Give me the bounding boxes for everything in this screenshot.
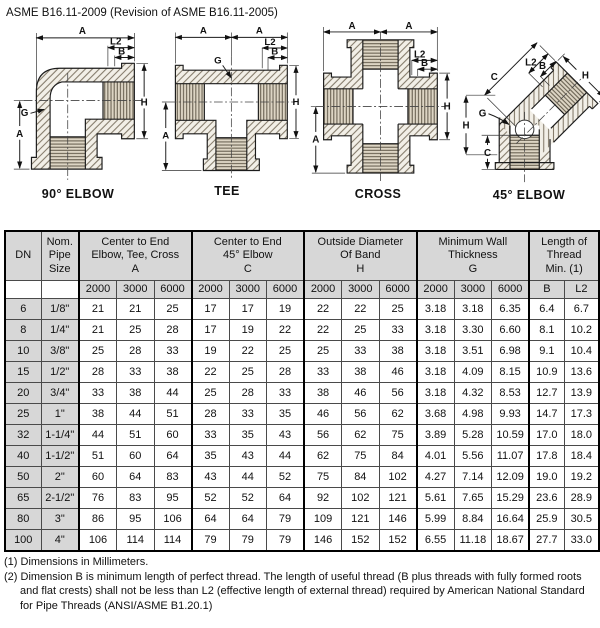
footnotes: (1) Dimensions in Millimeters. (2) Dimen… [4, 555, 596, 613]
value-cell: 46 [342, 383, 380, 404]
value-cell: 19 [229, 320, 267, 341]
value-cell: 28 [229, 383, 267, 404]
value-cell: 38 [79, 404, 117, 425]
value-cell: 23.6 [529, 488, 564, 509]
value-cell: 62 [342, 425, 380, 446]
pipe-size-cell: 2-1/2" [41, 488, 79, 509]
header-line: Elbow, Tee, Cross [91, 249, 179, 261]
value-cell: 13.9 [564, 383, 599, 404]
value-cell: 19 [267, 299, 305, 320]
empty-header-cell [5, 281, 41, 299]
value-cell: 10.2 [564, 320, 599, 341]
footnote-2: (2) Dimension B is minimum length of per… [4, 570, 596, 614]
value-cell: 8.15 [492, 362, 530, 383]
value-cell: 44 [229, 467, 267, 488]
value-cell: 60 [117, 446, 155, 467]
value-cell: 19 [192, 341, 230, 362]
value-cell: 56 [342, 404, 380, 425]
value-cell: 114 [154, 530, 192, 552]
subcol-header: L2 [564, 281, 599, 299]
figure-tee: A A L2 B G H A TEE [152, 20, 302, 224]
subcol-header: 6000 [492, 281, 530, 299]
cross-drawing: A A L2 B H A [304, 20, 453, 187]
value-cell: 43 [229, 446, 267, 467]
value-cell: 33 [117, 362, 155, 383]
value-cell: 52 [267, 467, 305, 488]
value-cell: 4.98 [454, 404, 492, 425]
value-cell: 56 [379, 383, 417, 404]
dim-label-c-arm: C [490, 72, 497, 83]
value-cell: 38 [342, 362, 380, 383]
value-cell: 28 [79, 362, 117, 383]
value-cell: 3.30 [454, 320, 492, 341]
table-body: 61/8"2121251717192222253.183.186.356.46.… [5, 299, 599, 552]
value-cell: 83 [117, 488, 155, 509]
figure-caption-tee: TEE [214, 184, 240, 198]
value-cell: 102 [379, 467, 417, 488]
value-cell: 22 [267, 320, 305, 341]
value-cell: 33 [229, 404, 267, 425]
dim-label-c-left: C [483, 148, 490, 159]
dimensions-table: DN Nom. Pipe Size Center to End Elbow, T… [4, 230, 600, 552]
header-line: Outside Diameter [318, 236, 404, 248]
header-line: Min. (1) [545, 263, 582, 275]
dim-label-a-left: A [16, 129, 23, 140]
header-line: Of Band [340, 249, 380, 261]
figure-caption-90-elbow: 90° ELBOW [42, 187, 115, 201]
value-cell: 38 [154, 362, 192, 383]
pipe-size-cell: 1/8" [41, 299, 79, 320]
dn-cell: 10 [5, 341, 41, 362]
dim-label-b: B [421, 58, 428, 69]
value-cell: 10.59 [492, 425, 530, 446]
value-cell: 35 [192, 446, 230, 467]
value-cell: 9.93 [492, 404, 530, 425]
value-cell: 64 [154, 446, 192, 467]
dn-cell: 65 [5, 488, 41, 509]
figure-caption-45-elbow: 45° ELBOW [493, 188, 566, 202]
dn-cell: 8 [5, 320, 41, 341]
header-line: H [356, 263, 364, 275]
value-cell: 5.99 [417, 509, 455, 530]
value-cell: 21 [117, 299, 155, 320]
value-cell: 3.18 [417, 320, 455, 341]
value-cell: 28 [192, 404, 230, 425]
value-cell: 11.18 [454, 530, 492, 552]
value-cell: 64 [267, 488, 305, 509]
value-cell: 52 [229, 488, 267, 509]
header-line: Center to End [214, 236, 282, 248]
empty-header-cell [41, 281, 79, 299]
subcol-header: 2000 [79, 281, 117, 299]
value-cell: 106 [154, 509, 192, 530]
value-cell: 25 [192, 383, 230, 404]
value-cell: 25 [342, 320, 380, 341]
col-group-center-to-end-c: Center to End 45° Elbow C [192, 231, 305, 281]
value-cell: 28 [117, 341, 155, 362]
value-cell: 35 [229, 425, 267, 446]
value-cell: 84 [342, 467, 380, 488]
value-cell: 10.9 [529, 362, 564, 383]
value-cell: 17.0 [529, 425, 564, 446]
value-cell: 114 [117, 530, 155, 552]
header-line: 45° Elbow [223, 249, 273, 261]
value-cell: 44 [117, 404, 155, 425]
pipe-size-cell: 1-1/2" [41, 446, 79, 467]
dn-cell: 15 [5, 362, 41, 383]
value-cell: 6.35 [492, 299, 530, 320]
pipe-size-cell: 1" [41, 404, 79, 425]
value-cell: 3.89 [417, 425, 455, 446]
value-cell: 62 [379, 404, 417, 425]
value-cell: 64 [117, 467, 155, 488]
value-cell: 44 [154, 383, 192, 404]
header-line: Size [49, 263, 70, 275]
subcol-header: 3000 [342, 281, 380, 299]
value-cell: 92 [304, 488, 342, 509]
value-cell: 43 [192, 467, 230, 488]
table-row: 251"3844512833354656623.684.989.9314.717… [5, 404, 599, 425]
value-cell: 5.28 [454, 425, 492, 446]
value-cell: 76 [79, 488, 117, 509]
dim-label-a-left: A [162, 131, 169, 142]
value-cell: 14.7 [529, 404, 564, 425]
value-cell: 52 [192, 488, 230, 509]
value-cell: 22 [304, 320, 342, 341]
value-cell: 44 [79, 425, 117, 446]
pipe-size-cell: 1/2" [41, 362, 79, 383]
value-cell: 35 [267, 404, 305, 425]
value-cell: 28 [154, 320, 192, 341]
dim-label-g: G [478, 109, 486, 120]
subcol-header: 6000 [267, 281, 305, 299]
pipe-size-cell: 1/4" [41, 320, 79, 341]
value-cell: 79 [229, 530, 267, 552]
table-row: 81/4"2125281719222225333.183.306.608.110… [5, 320, 599, 341]
value-cell: 8.1 [529, 320, 564, 341]
dim-label-a-top-left: A [348, 21, 355, 32]
value-cell: 95 [117, 509, 155, 530]
45-elbow-drawing: C L2 B H G H C [456, 20, 600, 188]
header-line: Thread [547, 249, 582, 261]
value-cell: 19.2 [564, 467, 599, 488]
subcol-header: 3000 [117, 281, 155, 299]
header-line: Nom. [47, 236, 73, 248]
value-cell: 3.18 [454, 299, 492, 320]
value-cell: 75 [342, 446, 380, 467]
col-group-min-wall-g: Minimum Wall Thickness G [417, 231, 530, 281]
value-cell: 79 [192, 530, 230, 552]
subcol-header: 6000 [154, 281, 192, 299]
figure-45-elbow: C L2 B H G H C 45 [454, 20, 600, 224]
value-cell: 22 [229, 341, 267, 362]
dn-cell: 100 [5, 530, 41, 552]
col-group-length-of-thread: Length of Thread Min. (1) [529, 231, 599, 281]
header-line: G [469, 263, 478, 275]
pipe-size-cell: 4" [41, 530, 79, 552]
value-cell: 16.64 [492, 509, 530, 530]
dim-label-l2: L2 [525, 57, 537, 68]
figure-caption-cross: CROSS [355, 187, 401, 201]
value-cell: 64 [192, 509, 230, 530]
value-cell: 6.98 [492, 341, 530, 362]
value-cell: 22 [304, 299, 342, 320]
value-cell: 121 [379, 488, 417, 509]
subcol-header: 3000 [454, 281, 492, 299]
dim-label-h-arm: H [581, 71, 588, 82]
value-cell: 3.18 [417, 383, 455, 404]
subcol-header: 3000 [229, 281, 267, 299]
dim-label-b: B [271, 47, 278, 58]
value-cell: 17.3 [564, 404, 599, 425]
value-cell: 22 [342, 299, 380, 320]
dim-label-a-top-right: A [405, 21, 412, 32]
value-cell: 7.14 [454, 467, 492, 488]
subcol-header: 2000 [192, 281, 230, 299]
value-cell: 51 [154, 404, 192, 425]
table-row: 401-1/2"5160643543446275844.015.5611.071… [5, 446, 599, 467]
dim-label-b: B [118, 47, 125, 58]
value-cell: 33 [267, 383, 305, 404]
header-line: C [244, 263, 252, 275]
value-cell: 146 [304, 530, 342, 552]
pipe-size-cell: 3/8" [41, 341, 79, 362]
dn-cell: 80 [5, 509, 41, 530]
col-header-dn: DN [5, 231, 41, 281]
dim-label-a-top-right: A [255, 26, 262, 37]
value-cell: 152 [379, 530, 417, 552]
header-line: Minimum Wall [439, 236, 508, 248]
value-cell: 25 [267, 341, 305, 362]
tee-drawing: A A L2 B G H A [154, 20, 301, 184]
table-row: 321-1/4"4451603335435662753.895.2810.591… [5, 425, 599, 446]
value-cell: 17 [192, 299, 230, 320]
dn-cell: 25 [5, 404, 41, 425]
dn-cell: 6 [5, 299, 41, 320]
value-cell: 11.07 [492, 446, 530, 467]
subcol-header: 2000 [304, 281, 342, 299]
table-row: 203/4"3338442528333846563.184.328.5312.7… [5, 383, 599, 404]
value-cell: 43 [267, 425, 305, 446]
table-subheader-row: 2000300060002000300060002000300060002000… [5, 281, 599, 299]
subcol-header: 2000 [417, 281, 455, 299]
value-cell: 46 [379, 362, 417, 383]
value-cell: 6.4 [529, 299, 564, 320]
value-cell: 5.56 [454, 446, 492, 467]
value-cell: 3.18 [417, 341, 455, 362]
value-cell: 27.7 [529, 530, 564, 552]
value-cell: 109 [304, 509, 342, 530]
value-cell: 38 [304, 383, 342, 404]
value-cell: 75 [379, 425, 417, 446]
table-row: 502"60648343445275841024.277.1412.0919.0… [5, 467, 599, 488]
value-cell: 9.1 [529, 341, 564, 362]
dim-label-h: H [140, 97, 147, 108]
table-head: DN Nom. Pipe Size Center to End Elbow, T… [5, 231, 599, 299]
value-cell: 86 [79, 509, 117, 530]
dim-label-g: G [20, 108, 28, 119]
value-cell: 102 [342, 488, 380, 509]
document-page: ASME B16.11-2009 (Revision of ASME B16.1… [0, 0, 600, 613]
pipe-size-cell: 3/4" [41, 383, 79, 404]
footnote-1: (1) Dimensions in Millimeters. [4, 555, 596, 570]
value-cell: 18.0 [564, 425, 599, 446]
value-cell: 8.53 [492, 383, 530, 404]
value-cell: 33.0 [564, 530, 599, 552]
value-cell: 12.09 [492, 467, 530, 488]
dim-label-a-top: A [78, 26, 85, 37]
value-cell: 25 [154, 299, 192, 320]
value-cell: 152 [342, 530, 380, 552]
dn-cell: 50 [5, 467, 41, 488]
drawings-row: A L2 B H A G 90° ELBOW [4, 20, 597, 224]
value-cell: 22 [192, 362, 230, 383]
value-cell: 10.4 [564, 341, 599, 362]
value-cell: 33 [79, 383, 117, 404]
value-cell: 12.7 [529, 383, 564, 404]
table-header-row: DN Nom. Pipe Size Center to End Elbow, T… [5, 231, 599, 281]
value-cell: 4.32 [454, 383, 492, 404]
value-cell: 19.0 [529, 467, 564, 488]
value-cell: 17 [229, 299, 267, 320]
value-cell: 121 [342, 509, 380, 530]
value-cell: 38 [117, 383, 155, 404]
value-cell: 95 [154, 488, 192, 509]
header-line: Center to End [101, 236, 169, 248]
value-cell: 5.61 [417, 488, 455, 509]
value-cell: 75 [304, 467, 342, 488]
value-cell: 62 [304, 446, 342, 467]
value-cell: 33 [304, 362, 342, 383]
dn-cell: 32 [5, 425, 41, 446]
dim-label-h-left: H [462, 120, 469, 131]
value-cell: 60 [79, 467, 117, 488]
value-cell: 64 [229, 509, 267, 530]
value-cell: 51 [79, 446, 117, 467]
table-row: 151/2"2833382225283338463.184.098.1510.9… [5, 362, 599, 383]
value-cell: 83 [154, 467, 192, 488]
value-cell: 84 [379, 446, 417, 467]
table-row: 652-1/2"768395525264921021215.617.6515.2… [5, 488, 599, 509]
dim-label-a-left: A [312, 135, 319, 146]
value-cell: 51 [117, 425, 155, 446]
value-cell: 15.29 [492, 488, 530, 509]
dim-label-h: H [292, 97, 299, 108]
value-cell: 3.51 [454, 341, 492, 362]
col-header-pipe-size: Nom. Pipe Size [41, 231, 79, 281]
value-cell: 60 [154, 425, 192, 446]
subcol-header: B [529, 281, 564, 299]
value-cell: 25 [379, 299, 417, 320]
value-cell: 17.8 [529, 446, 564, 467]
value-cell: 33 [342, 341, 380, 362]
value-cell: 8.84 [454, 509, 492, 530]
col-group-center-to-end-a: Center to End Elbow, Tee, Cross A [79, 231, 192, 281]
value-cell: 38 [379, 341, 417, 362]
col-group-outside-diameter-h: Outside Diameter Of Band H [304, 231, 417, 281]
dim-label-g: G [214, 55, 222, 66]
value-cell: 3.68 [417, 404, 455, 425]
pipe-size-cell: 3" [41, 509, 79, 530]
90-elbow-drawing: A L2 B H A G [6, 20, 151, 187]
value-cell: 25 [117, 320, 155, 341]
header-line: Thickness [448, 249, 498, 261]
value-cell: 25 [79, 341, 117, 362]
page-title: ASME B16.11-2009 (Revision of ASME B16.1… [6, 7, 597, 19]
value-cell: 146 [379, 509, 417, 530]
value-cell: 7.65 [454, 488, 492, 509]
header-line: Length of [541, 236, 587, 248]
value-cell: 106 [79, 530, 117, 552]
header-line: Pipe [49, 249, 71, 261]
value-cell: 30.5 [564, 509, 599, 530]
table-row: 61/8"2121251717192222253.183.186.356.46.… [5, 299, 599, 320]
value-cell: 4.01 [417, 446, 455, 467]
value-cell: 6.60 [492, 320, 530, 341]
value-cell: 25 [229, 362, 267, 383]
value-cell: 25.9 [529, 509, 564, 530]
pipe-size-cell: 2" [41, 467, 79, 488]
value-cell: 18.67 [492, 530, 530, 552]
table-row: 103/8"2528331922252533383.183.516.989.11… [5, 341, 599, 362]
header-line: A [132, 263, 139, 275]
value-cell: 28 [267, 362, 305, 383]
value-cell: 21 [79, 320, 117, 341]
figure-cross: A A L2 B H A CROSS [302, 20, 454, 224]
dn-cell: 40 [5, 446, 41, 467]
value-cell: 79 [267, 530, 305, 552]
value-cell: 3.18 [417, 299, 455, 320]
dim-label-b: B [539, 61, 546, 72]
table-row: 1004"1061141147979791461521526.5511.1818… [5, 530, 599, 552]
dim-label-h: H [443, 101, 450, 112]
value-cell: 13.6 [564, 362, 599, 383]
value-cell: 33 [154, 341, 192, 362]
value-cell: 25 [304, 341, 342, 362]
value-cell: 46 [304, 404, 342, 425]
subcol-header: 6000 [379, 281, 417, 299]
dim-label-a-top-left: A [199, 26, 206, 37]
table-row: 803"86951066464791091211465.998.8416.642… [5, 509, 599, 530]
value-cell: 18.4 [564, 446, 599, 467]
dn-cell: 20 [5, 383, 41, 404]
value-cell: 17 [192, 320, 230, 341]
figure-90-elbow: A L2 B H A G 90° ELBOW [4, 20, 152, 224]
value-cell: 44 [267, 446, 305, 467]
value-cell: 4.27 [417, 467, 455, 488]
value-cell: 28.9 [564, 488, 599, 509]
value-cell: 3.18 [417, 362, 455, 383]
value-cell: 21 [79, 299, 117, 320]
value-cell: 33 [192, 425, 230, 446]
pipe-size-cell: 1-1/4" [41, 425, 79, 446]
value-cell: 79 [267, 509, 305, 530]
value-cell: 56 [304, 425, 342, 446]
value-cell: 6.55 [417, 530, 455, 552]
value-cell: 4.09 [454, 362, 492, 383]
value-cell: 6.7 [564, 299, 599, 320]
value-cell: 33 [379, 320, 417, 341]
